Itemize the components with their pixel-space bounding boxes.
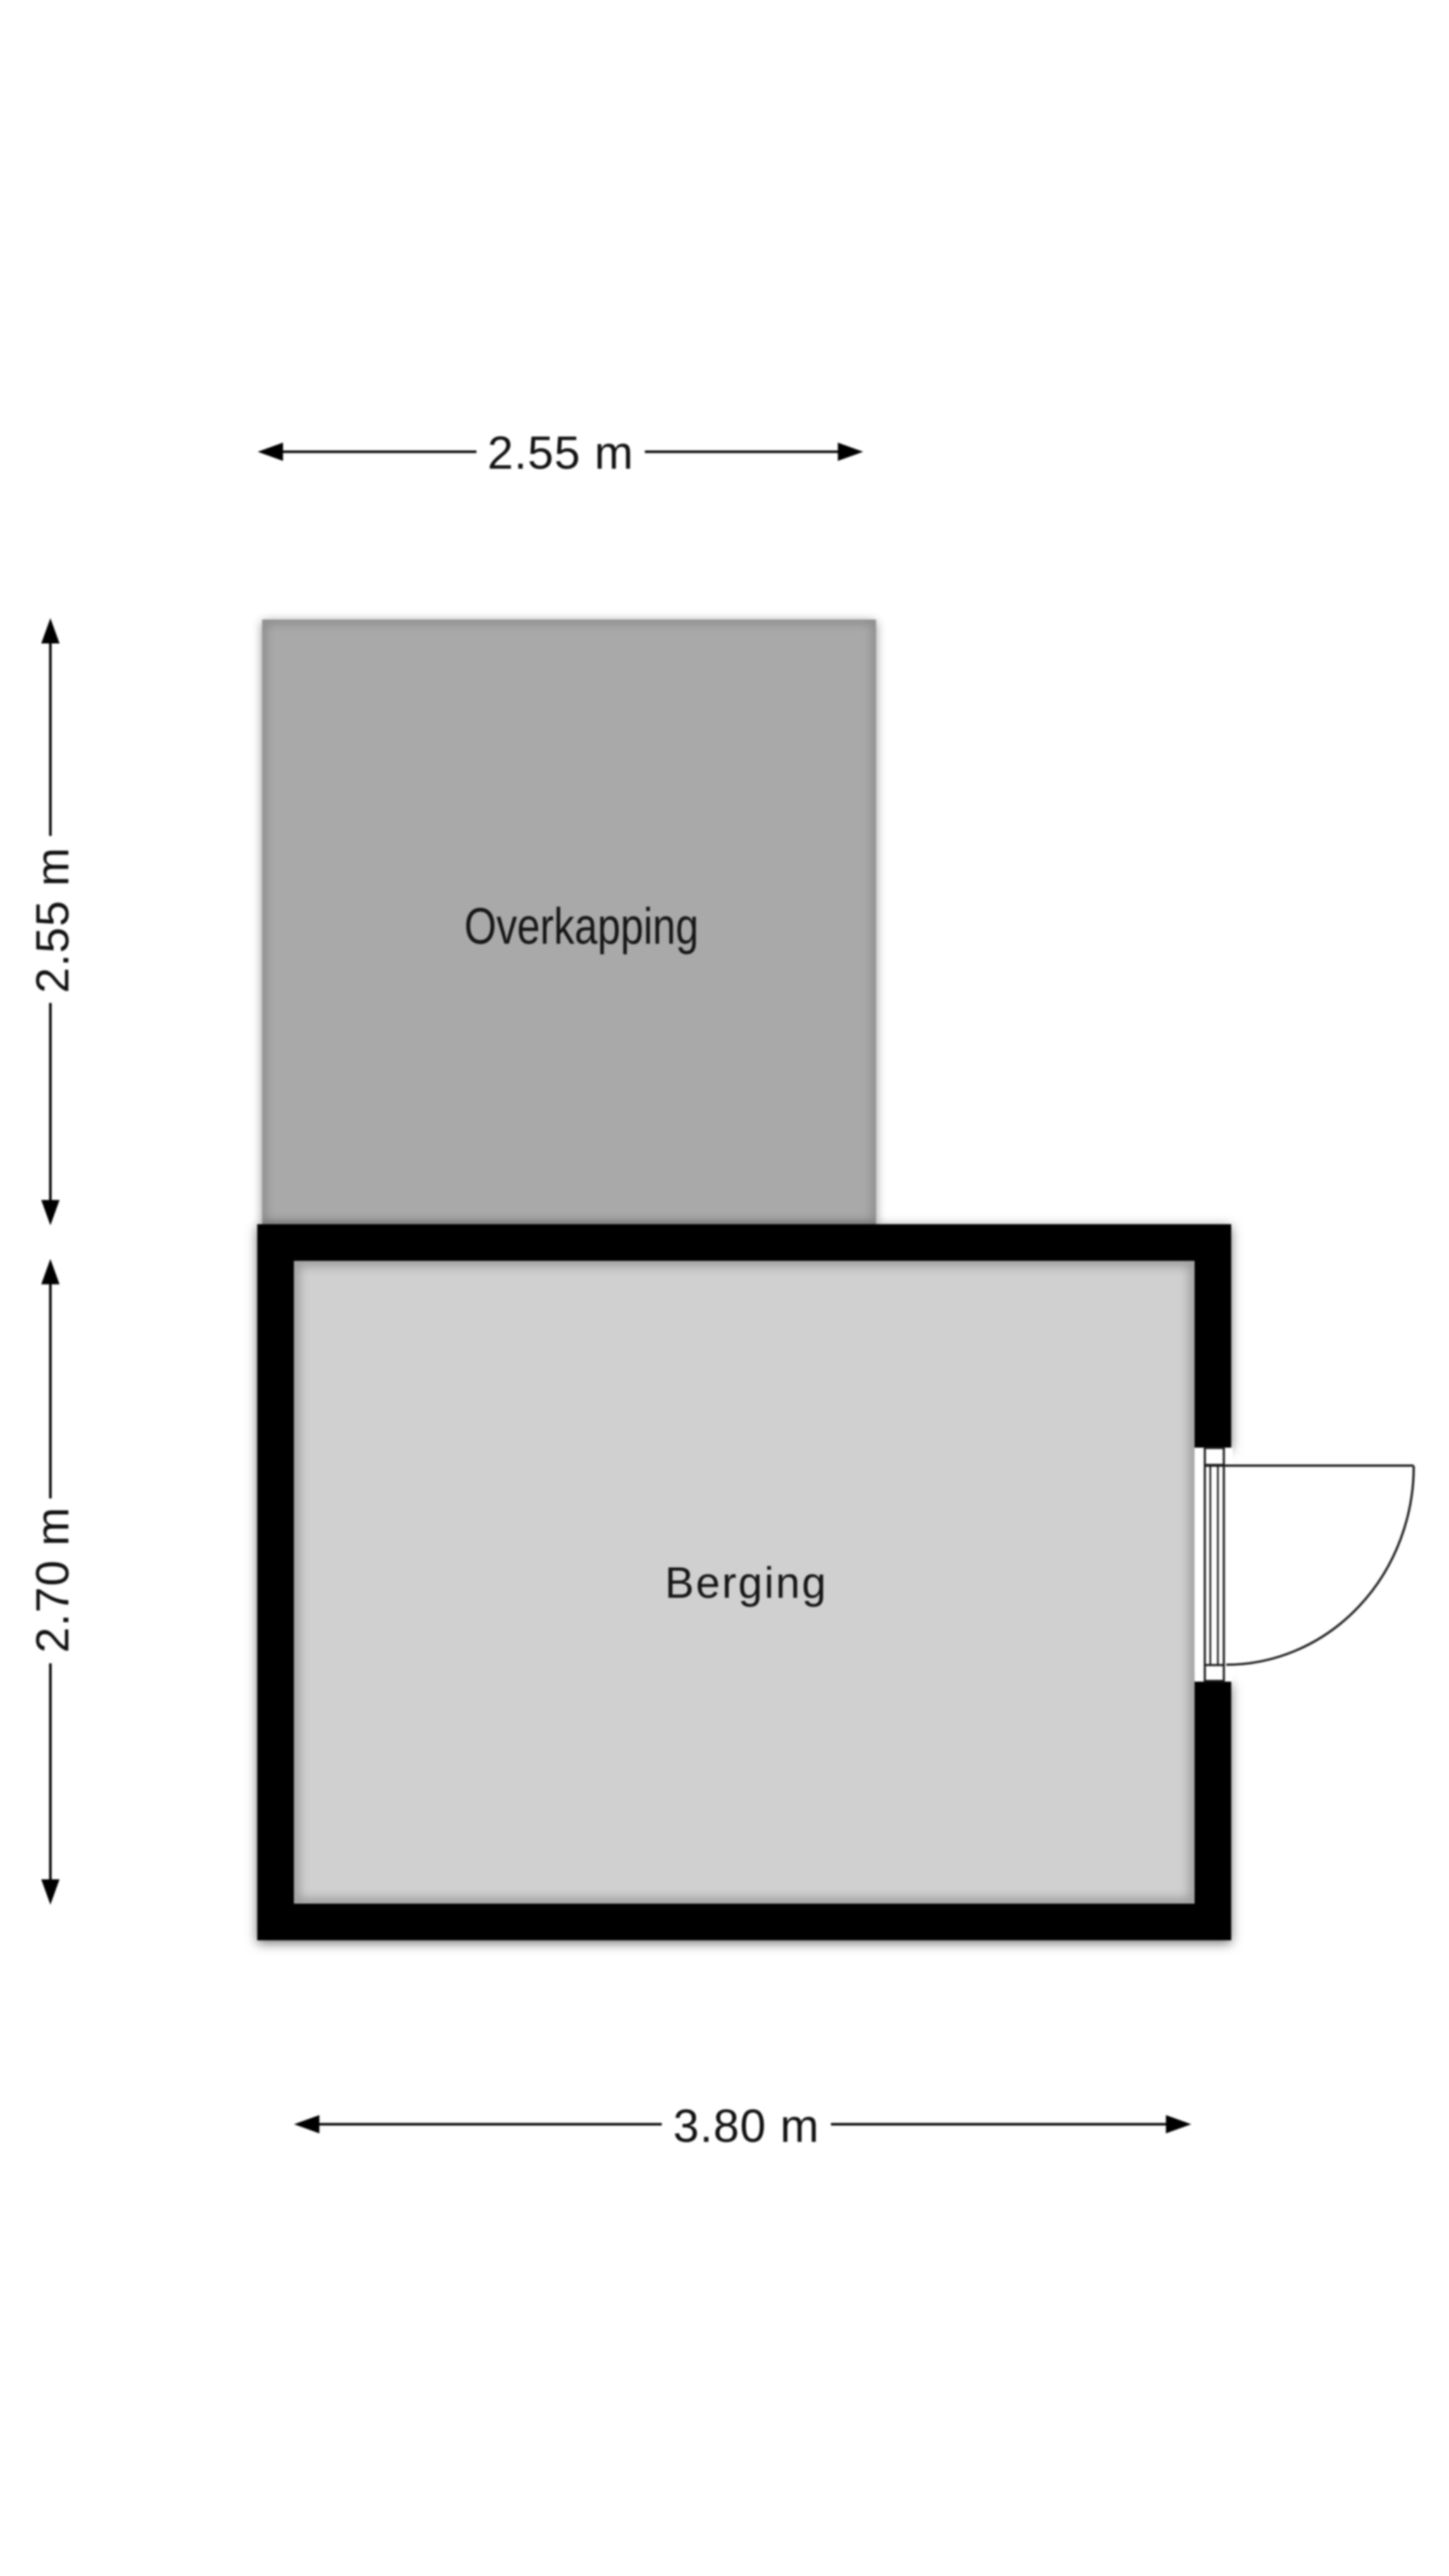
svg-text:2.55 m: 2.55 m (26, 847, 78, 994)
svg-text:Berging: Berging (665, 1559, 827, 1608)
svg-text:Overkapping: Overkapping (464, 898, 699, 954)
svg-text:2.70 m: 2.70 m (26, 1507, 78, 1653)
svg-text:3.80 m: 3.80 m (673, 2100, 820, 2152)
svg-text:2.55 m: 2.55 m (488, 426, 634, 479)
